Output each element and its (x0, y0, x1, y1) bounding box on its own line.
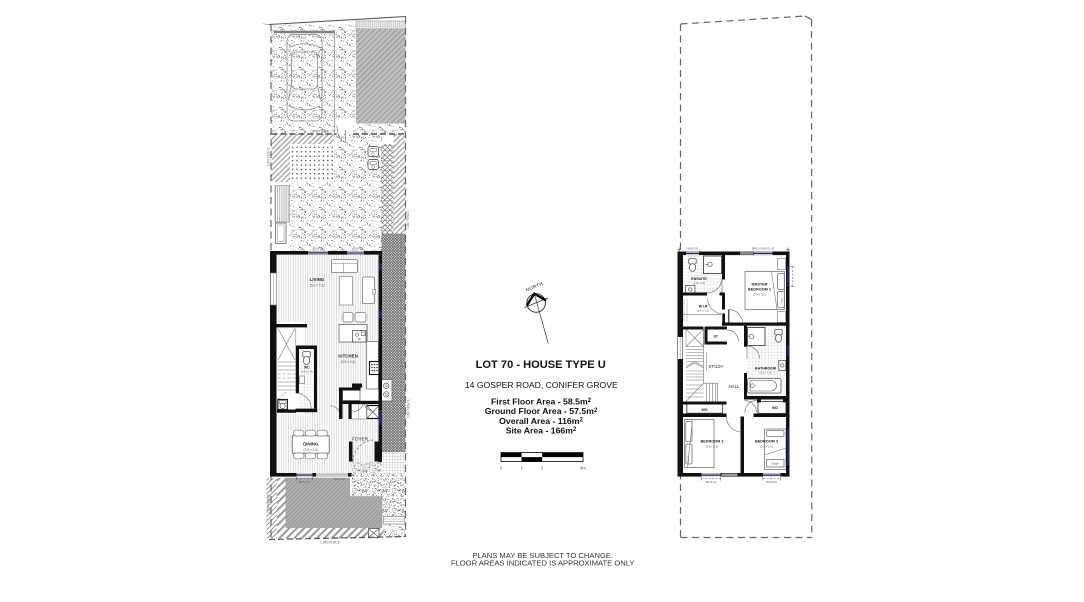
svg-text:NORTH: NORTH (525, 281, 544, 292)
svg-text:FOYER: FOYER (352, 437, 369, 442)
svg-text:W.I.R: W.I.R (699, 305, 708, 309)
svg-text:1.8M FENCE: 1.8M FENCE (406, 399, 410, 418)
svg-text:(5.6 x 3.3): (5.6 x 3.3) (310, 284, 325, 288)
svg-text:WD: WD (702, 408, 708, 412)
svg-text:BEDROOM 3: BEDROOM 3 (755, 440, 778, 444)
svg-text:HALL: HALL (729, 384, 741, 389)
svg-text:1.8M FENCE: 1.8M FENCE (266, 147, 270, 166)
svg-text:BF02-01: BF02-01 (706, 480, 717, 484)
svg-text:0: 0 (500, 466, 503, 471)
svg-text:Queen: Queen (687, 455, 690, 463)
svg-text:4m: 4m (580, 466, 586, 471)
svg-text:BF02-02: BF02-02 (766, 480, 777, 484)
svg-text:Single: Single (772, 462, 780, 466)
svg-text:1.8M FENCE: 1.8M FENCE (266, 494, 270, 513)
svg-text:BF01-03: BF01-03 (352, 247, 363, 251)
svg-text:1: 1 (520, 466, 523, 471)
svg-text:Site Area - 166m2: Site Area - 166m2 (506, 425, 577, 435)
svg-text:BF01-02: BF01-02 (334, 477, 345, 481)
svg-text:(3.9 x 2.6): (3.9 x 2.6) (341, 360, 356, 364)
svg-text:BF02-05: BF02-05 (687, 247, 698, 251)
svg-text:2: 2 (541, 466, 544, 471)
svg-text:(3.5 x 3.0): (3.5 x 3.0) (303, 448, 318, 452)
svg-text:ST.: ST. (714, 335, 719, 339)
svg-text:14 GOSPER ROAD, CONIFER GROVE: 14 GOSPER ROAD, CONIFER GROVE (465, 380, 618, 390)
svg-text:FLOOR AREAS INDICATED IS APPRO: FLOOR AREAS INDICATED IS APPROXIMATE ONL… (451, 558, 635, 567)
svg-text:(1.9 x 1.2): (1.9 x 1.2) (697, 308, 709, 312)
svg-text:KITCHEN: KITCHEN (338, 354, 358, 359)
svg-text:WC: WC (304, 366, 310, 370)
svg-text:ENSUITE: ENSUITE (691, 277, 707, 281)
svg-text:WD: WD (772, 406, 778, 410)
svg-text:King: King (780, 298, 783, 304)
svg-text:2.4M GATE: 2.4M GATE (313, 130, 329, 134)
svg-text:(3.4 x 3.0): (3.4 x 3.0) (753, 293, 766, 297)
svg-text:BF02-04 BF02-03: BF02-04 BF02-03 (752, 247, 775, 251)
svg-text:BATHROOM: BATHROOM (755, 367, 776, 371)
svg-text:(0.9 x 1.9): (0.9 x 1.9) (301, 369, 313, 373)
svg-text:MASTER: MASTER (751, 283, 767, 287)
svg-text:Overall Area - 116m2: Overall Area - 116m2 (499, 416, 583, 426)
svg-text:(3.6 x 2.9): (3.6 x 2.9) (706, 445, 719, 449)
svg-text:LIVING: LIVING (310, 277, 325, 282)
svg-text:BEDROOM 2: BEDROOM 2 (701, 440, 724, 444)
svg-text:1.8M FENCE: 1.8M FENCE (406, 210, 410, 229)
svg-text:(2.8 x 1.9): (2.8 x 1.9) (760, 445, 773, 449)
svg-text:BF01-01: BF01-01 (299, 480, 310, 484)
svg-text:STUDY: STUDY (709, 364, 724, 369)
svg-text:DINING: DINING (303, 442, 319, 447)
svg-text:Ground Floor Area - 57.5m2: Ground Floor Area - 57.5m2 (485, 406, 598, 416)
svg-text:BEDROOM 1: BEDROOM 1 (748, 288, 771, 292)
svg-text:BF01-04: BF01-04 (313, 247, 324, 251)
svg-text:1.8M FENCE: 1.8M FENCE (320, 541, 341, 545)
svg-text:(1.9 x 1.9): (1.9 x 1.9) (693, 281, 705, 285)
svg-text:First Floor Area - 58.5m2: First Floor Area - 58.5m2 (491, 397, 592, 407)
svg-text:LOT 70 - HOUSE TYPE U: LOT 70 - HOUSE TYPE U (476, 359, 606, 371)
svg-text:(2.6 x 1.5): (2.6 x 1.5) (759, 371, 771, 375)
